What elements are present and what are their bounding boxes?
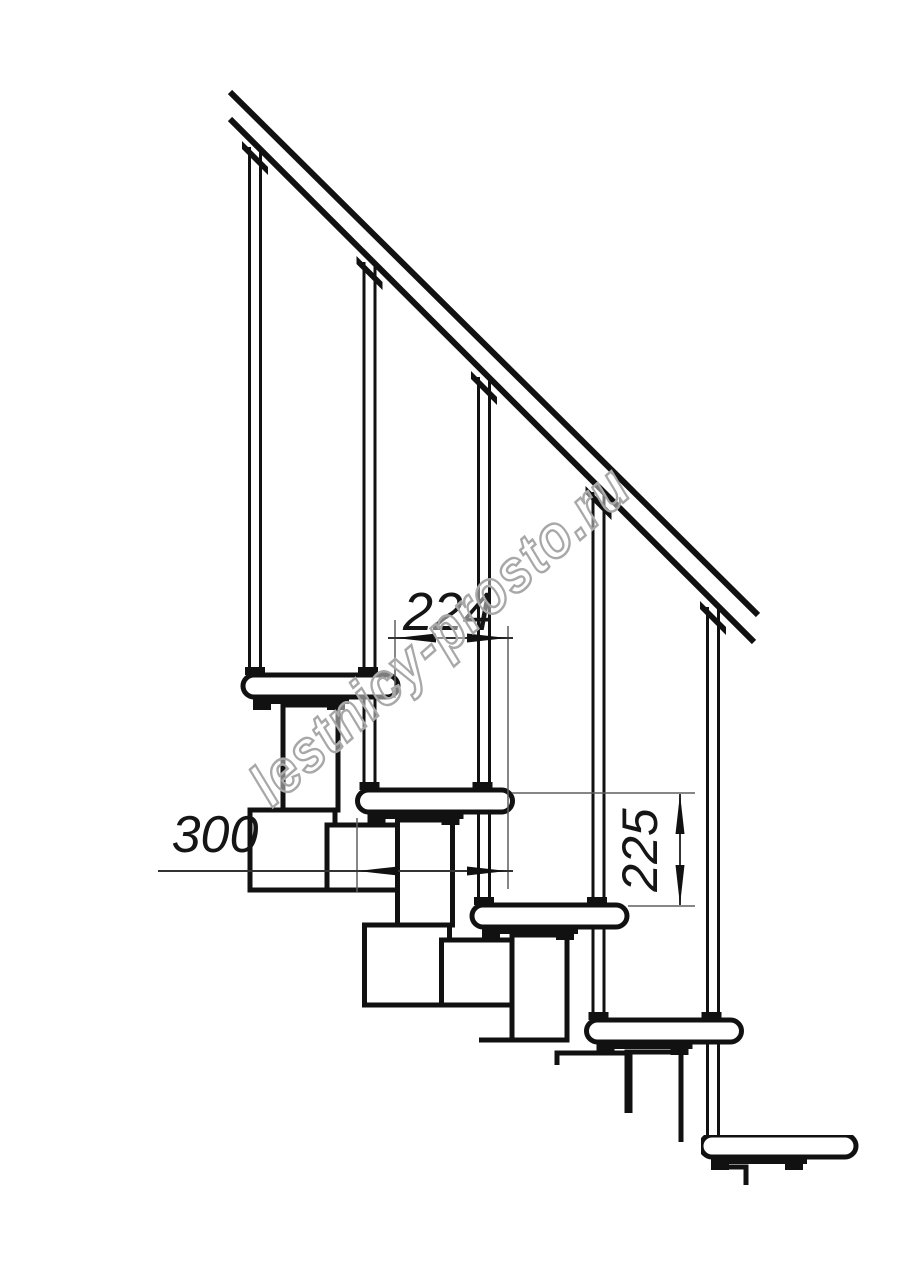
dimension-label-225: 225 — [612, 808, 668, 893]
dimension-label-300: 300 — [172, 806, 259, 864]
staircase-drawing-page: 224 300 225 lestnicy-prosto.ru — [0, 0, 914, 1280]
staircase-technical-drawing: 224 300 225 lestnicy-prosto.ru — [0, 0, 914, 1280]
